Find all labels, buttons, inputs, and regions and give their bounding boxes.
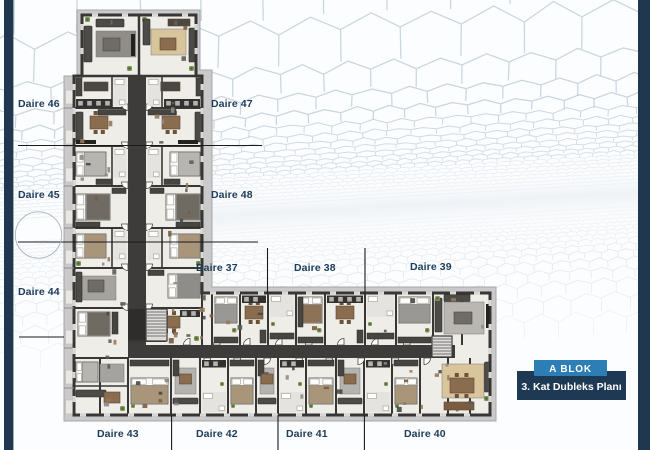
svg-text:Daire 45: Daire 45: [18, 189, 60, 201]
svg-text:Daire 47: Daire 47: [211, 98, 253, 110]
svg-text:Daire 48: Daire 48: [211, 189, 253, 201]
svg-text:Daire 43: Daire 43: [97, 428, 139, 440]
svg-text:Daire 40: Daire 40: [404, 428, 446, 440]
svg-text:A BLOK: A BLOK: [549, 364, 592, 375]
svg-text:Daire 38: Daire 38: [294, 262, 336, 274]
svg-text:Daire 41: Daire 41: [286, 428, 328, 440]
svg-text:3. Kat Dubleks Planı: 3. Kat Dubleks Planı: [521, 381, 621, 393]
svg-text:Daire 44: Daire 44: [18, 286, 60, 298]
svg-text:Daire 39: Daire 39: [410, 261, 452, 273]
svg-text:Daire 37: Daire 37: [196, 262, 238, 274]
svg-text:Daire 42: Daire 42: [196, 428, 238, 440]
svg-text:Daire 46: Daire 46: [18, 98, 60, 110]
